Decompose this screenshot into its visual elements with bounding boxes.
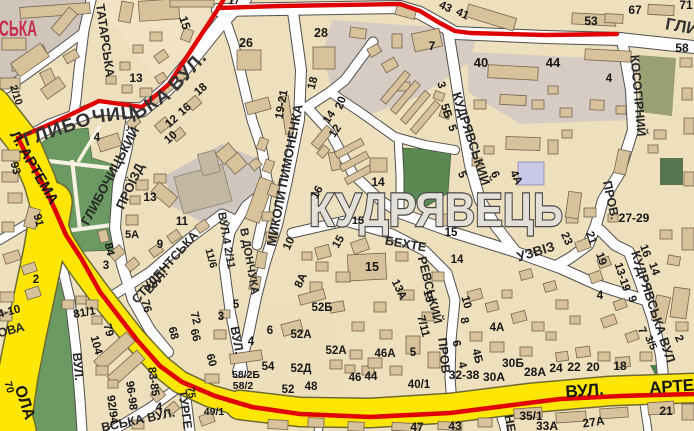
svg-text:40/1: 40/1 xyxy=(408,379,431,391)
svg-text:5: 5 xyxy=(233,299,240,311)
svg-text:4: 4 xyxy=(606,73,613,85)
svg-text:52А: 52А xyxy=(290,329,311,341)
svg-text:32-38: 32-38 xyxy=(449,368,480,382)
svg-text:40: 40 xyxy=(474,55,488,70)
svg-text:48: 48 xyxy=(305,381,318,393)
svg-text:30А: 30А xyxy=(483,370,505,384)
svg-text:3: 3 xyxy=(218,311,224,323)
svg-text:33А: 33А xyxy=(536,419,558,431)
svg-text:47: 47 xyxy=(410,420,424,431)
svg-text:11: 11 xyxy=(176,216,189,228)
svg-text:44: 44 xyxy=(365,371,378,383)
svg-text:43: 43 xyxy=(448,419,462,431)
svg-text:17: 17 xyxy=(228,0,240,7)
svg-text:52А: 52А xyxy=(325,345,346,357)
svg-text:21: 21 xyxy=(659,404,673,418)
svg-text:54: 54 xyxy=(262,361,275,373)
svg-text:24: 24 xyxy=(549,361,563,375)
svg-text:15: 15 xyxy=(445,227,458,239)
svg-text:5А: 5А xyxy=(125,229,139,241)
svg-text:4А: 4А xyxy=(490,322,505,334)
svg-text:28: 28 xyxy=(314,26,328,40)
svg-text:СЬКА: СЬКА xyxy=(0,16,37,41)
svg-text:27-29: 27-29 xyxy=(619,211,650,225)
svg-text:7: 7 xyxy=(429,39,436,53)
svg-text:44: 44 xyxy=(546,55,561,70)
svg-text:13: 13 xyxy=(129,71,143,85)
svg-text:52Б: 52Б xyxy=(311,302,332,314)
svg-text:ВУЛ.: ВУЛ. xyxy=(565,380,604,402)
svg-text:52Д: 52Д xyxy=(291,363,312,375)
svg-text:15: 15 xyxy=(365,260,379,274)
svg-text:14: 14 xyxy=(371,175,385,189)
svg-text:15: 15 xyxy=(352,215,364,227)
svg-text:58/2: 58/2 xyxy=(233,380,254,392)
svg-text:5: 5 xyxy=(410,347,417,359)
svg-text:75: 75 xyxy=(184,386,198,399)
svg-text:18: 18 xyxy=(613,359,627,373)
svg-text:52: 52 xyxy=(282,384,295,396)
svg-text:3: 3 xyxy=(103,260,109,272)
svg-text:2: 2 xyxy=(33,274,39,286)
svg-text:46А: 46А xyxy=(374,348,395,360)
svg-text:4: 4 xyxy=(248,336,255,348)
svg-text:6: 6 xyxy=(267,325,273,337)
svg-text:28А: 28А xyxy=(524,365,546,379)
svg-text:20: 20 xyxy=(586,360,600,374)
svg-text:14: 14 xyxy=(451,254,464,266)
svg-text:53: 53 xyxy=(584,14,598,28)
svg-text:4: 4 xyxy=(156,402,163,414)
svg-text:30Б: 30Б xyxy=(502,356,524,370)
svg-text:49/1: 49/1 xyxy=(204,406,225,418)
svg-text:4: 4 xyxy=(94,132,101,144)
svg-text:АРТЕ: АРТЕ xyxy=(648,375,694,397)
svg-text:71: 71 xyxy=(679,0,693,12)
svg-text:67: 67 xyxy=(628,3,642,17)
svg-text:КУДРЯВЕЦЬ: КУДРЯВЕЦЬ xyxy=(309,183,563,236)
svg-text:4: 4 xyxy=(597,290,604,302)
svg-text:58: 58 xyxy=(675,41,689,55)
svg-text:46: 46 xyxy=(349,372,362,384)
svg-text:9: 9 xyxy=(157,239,163,251)
svg-text:26: 26 xyxy=(239,36,253,50)
svg-text:22: 22 xyxy=(567,360,581,374)
svg-text:НЕ: НЕ xyxy=(502,414,519,431)
svg-text:13: 13 xyxy=(143,190,157,204)
svg-text:ВУЛ.: ВУЛ. xyxy=(70,352,86,381)
